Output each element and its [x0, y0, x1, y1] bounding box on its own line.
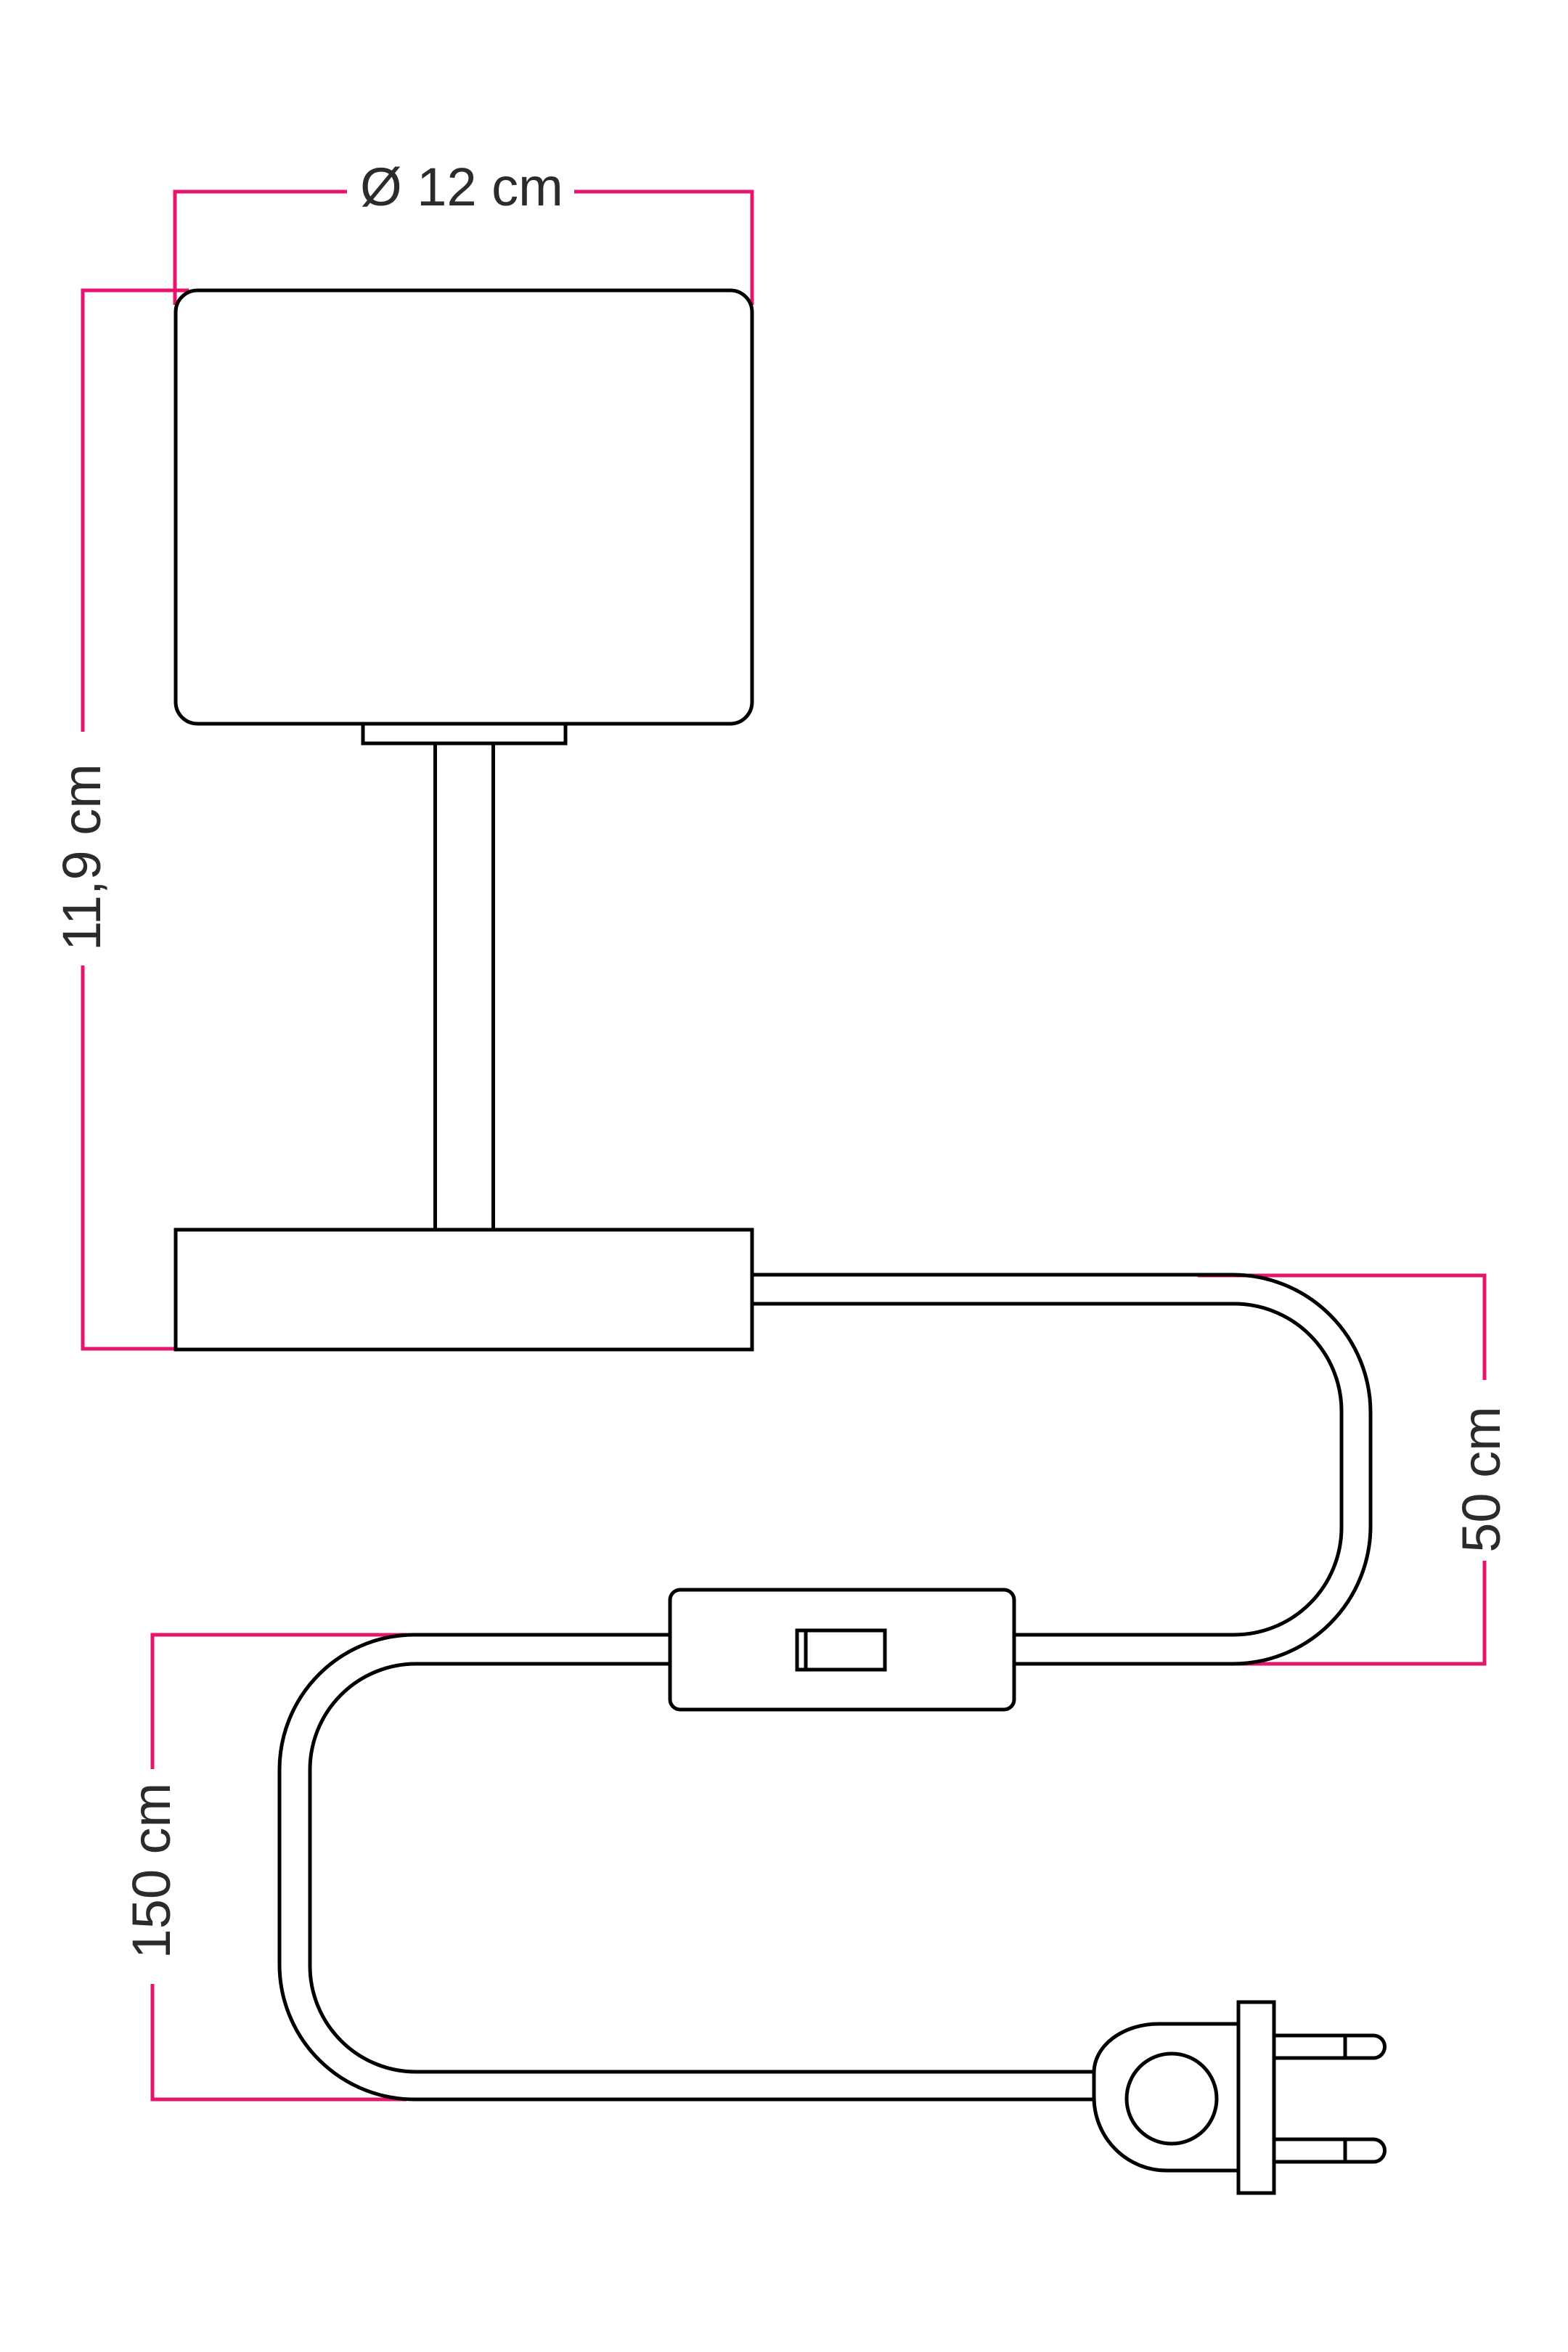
svg-text:Ø 12 cm: Ø 12 cm: [360, 157, 563, 217]
svg-text:50 cm: 50 cm: [1451, 1406, 1511, 1553]
svg-text:11,9 cm: 11,9 cm: [52, 764, 112, 951]
svg-text:150 cm: 150 cm: [121, 1783, 181, 1959]
